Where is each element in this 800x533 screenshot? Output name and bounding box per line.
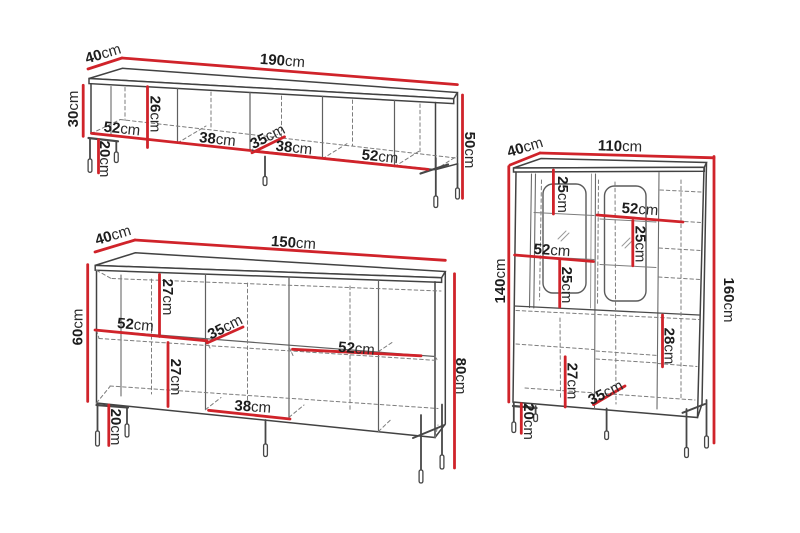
svg-text:50cm: 50cm [462, 132, 479, 169]
svg-text:20cm: 20cm [521, 403, 538, 440]
svg-text:20cm: 20cm [97, 141, 114, 178]
svg-text:25cm: 25cm [555, 176, 572, 213]
svg-text:27cm: 27cm [160, 279, 177, 316]
svg-text:190cm: 190cm [259, 50, 305, 70]
svg-text:27cm: 27cm [168, 359, 185, 396]
svg-text:52cm: 52cm [621, 199, 659, 219]
svg-text:25cm: 25cm [559, 267, 576, 304]
svg-text:38cm: 38cm [234, 397, 272, 417]
svg-text:60cm: 60cm [69, 309, 86, 346]
svg-text:30cm: 30cm [65, 91, 82, 128]
svg-text:110cm: 110cm [598, 137, 643, 155]
svg-text:25cm: 25cm [632, 226, 649, 263]
svg-text:52cm: 52cm [533, 240, 571, 260]
svg-text:150cm: 150cm [270, 232, 316, 252]
svg-text:80cm: 80cm [452, 358, 469, 395]
svg-text:26cm: 26cm [147, 96, 164, 133]
svg-text:52cm: 52cm [116, 314, 154, 334]
svg-text:140cm: 140cm [492, 258, 509, 303]
svg-text:52cm: 52cm [337, 338, 375, 358]
svg-text:28cm: 28cm [661, 328, 678, 365]
svg-text:20cm: 20cm [108, 409, 125, 446]
svg-text:27cm: 27cm [564, 363, 581, 400]
svg-text:160cm: 160cm [721, 277, 738, 322]
